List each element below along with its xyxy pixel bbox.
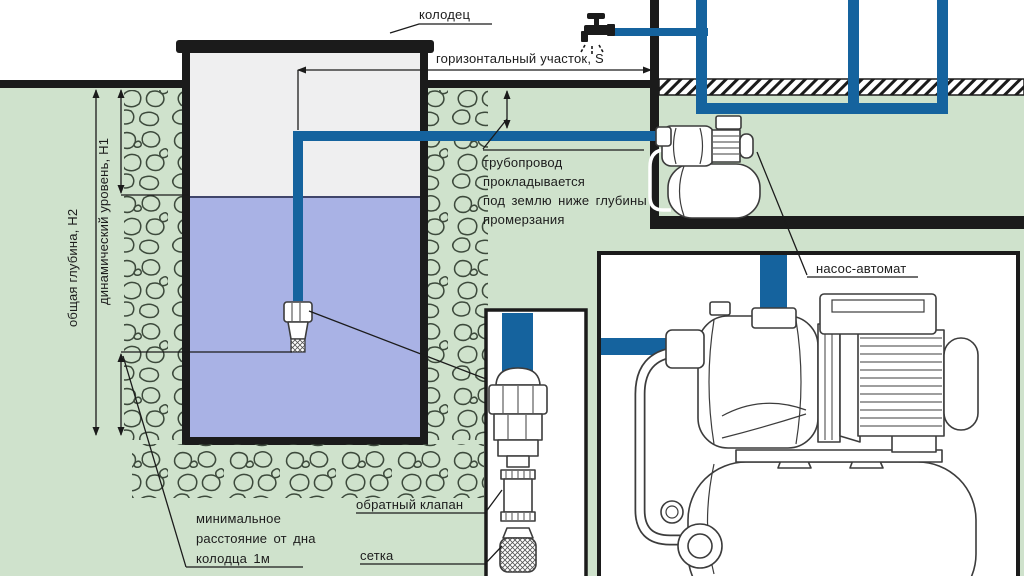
check-valve-label: обратный клапан: [356, 496, 463, 514]
outdoor-tap-branch-pipe: [612, 28, 708, 36]
pipeline-note: трубопровод прокладывается под землю ниж…: [483, 153, 647, 229]
pump-inlet-fitting: [666, 330, 704, 368]
well-water-supply-diagram: колодец горизонтальный участок, S трубоп…: [0, 0, 1024, 576]
pump-top-inlet: [752, 308, 796, 328]
diagram-canvas: [0, 0, 1024, 576]
total-depth-label: общая глубина, Н2: [64, 142, 82, 327]
horizontal-section-label: горизонтальный участок, S: [436, 50, 604, 68]
well-cover: [176, 40, 434, 53]
supply-pipe-horizontal: [293, 131, 668, 141]
pressure-gauge: [661, 501, 683, 523]
min-distance-note: минимальное расстояние от дна колодца 1м: [196, 509, 316, 569]
strainer-label: сетка: [360, 547, 393, 565]
riser-pipe-3: [937, 0, 948, 114]
well-label: колодец: [419, 6, 470, 24]
riser-pipe-2: [848, 0, 859, 110]
check-valve-drawing: [501, 470, 535, 521]
well-drop-pipe: [293, 131, 303, 301]
dynamic-level-label: динамический уровень, Н1: [95, 110, 113, 305]
detail-pipe: [502, 313, 533, 371]
house-floor-hatch: [659, 79, 1024, 95]
riser-pipe-1: [696, 0, 707, 114]
header-pipe: [696, 103, 948, 114]
strainer-drawing: [500, 528, 536, 572]
pump-station-label: насос-автомат: [816, 260, 906, 278]
sky-and-house-interior: [0, 0, 1024, 80]
well-shaft: [176, 40, 434, 445]
detail-top-pipe: [760, 255, 787, 315]
